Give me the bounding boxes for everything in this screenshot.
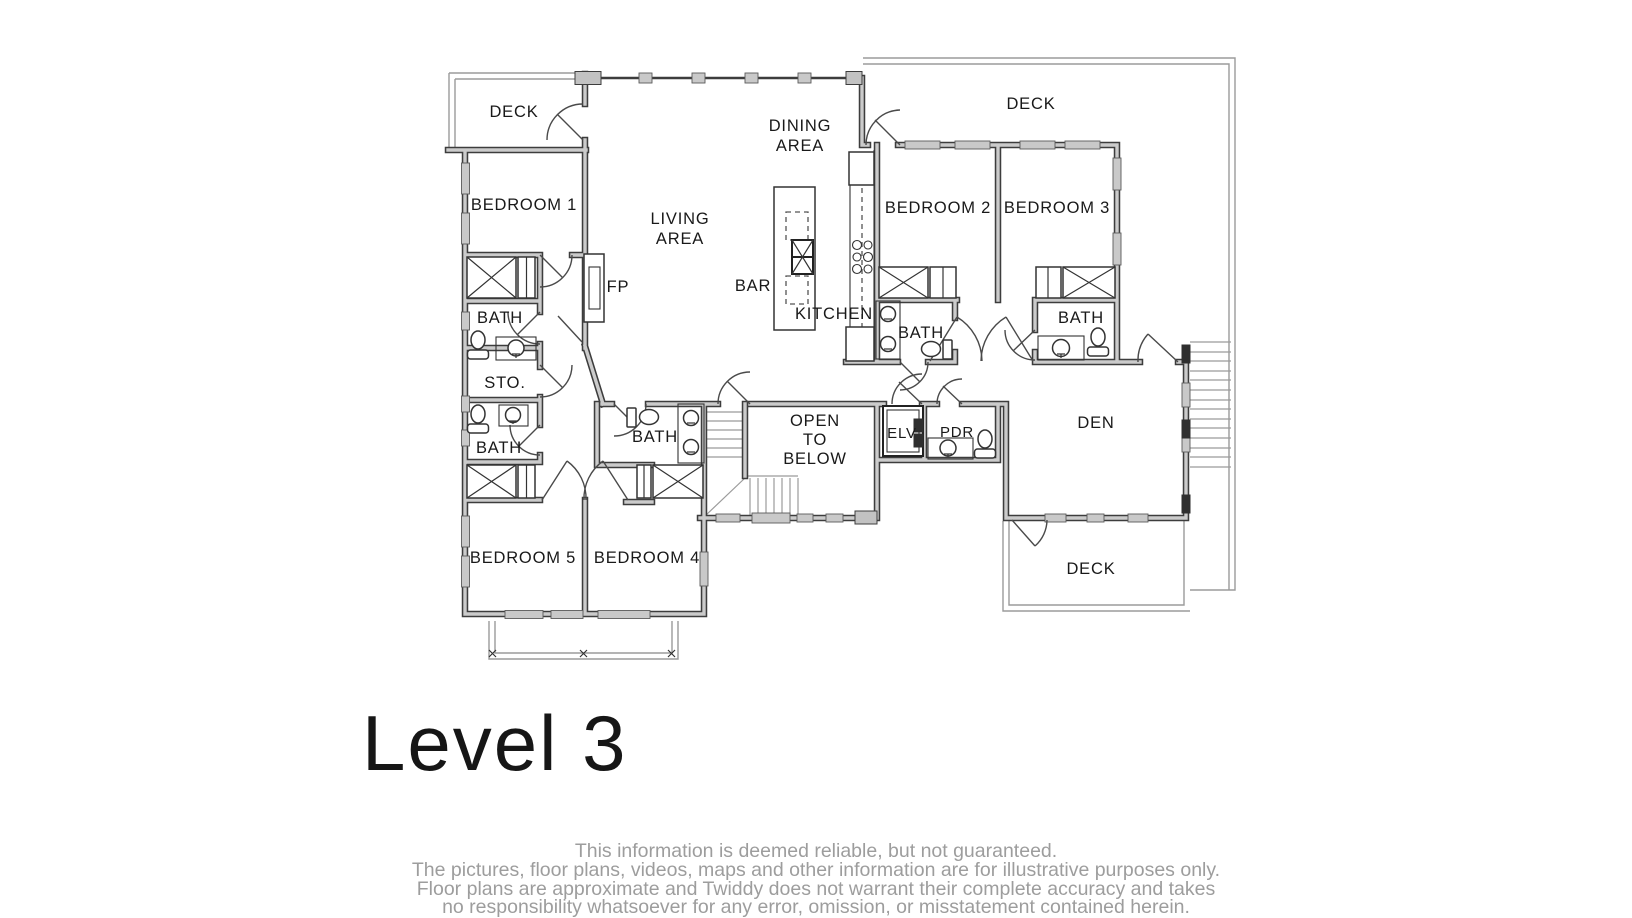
closet-icon	[467, 465, 535, 498]
room-label-living-area: LIVING	[651, 210, 710, 228]
door-arc	[1005, 330, 1035, 360]
floor-plan-svg: DECK BEDROOM 1 BATH STO. BATH BEDROOM 5 …	[0, 0, 1632, 916]
room-label-bath-bedroom-3: BATH	[1058, 309, 1104, 327]
room-label-bar: BAR	[735, 277, 771, 295]
room-label-dining-area-2: AREA	[776, 137, 824, 155]
room-label-bedroom-4: BEDROOM 4	[594, 549, 700, 567]
room-label-bath-1: BATH	[477, 309, 523, 327]
room-label-open-to-below: OPEN	[790, 412, 840, 430]
deck-post	[1182, 345, 1190, 363]
room-label-storage: STO.	[484, 374, 525, 392]
room-label-den: DEN	[1077, 414, 1114, 432]
fireplace-icon	[584, 254, 604, 322]
sink-icon	[928, 438, 973, 459]
closet-icon	[879, 267, 956, 298]
walls	[448, 74, 1186, 614]
island-sink-icon	[792, 240, 813, 274]
room-label-kitchen: KITCHEN	[795, 305, 873, 323]
room-label-deck-top-left: DECK	[489, 103, 538, 121]
door-arc	[900, 362, 928, 390]
sink-icon	[499, 405, 528, 426]
door-arc	[866, 110, 900, 145]
closet-icon	[1036, 267, 1115, 298]
toilet-icon	[468, 405, 489, 433]
toilet-icon	[627, 408, 659, 427]
room-label-powder-room: PDR	[940, 424, 974, 441]
door-arc	[1138, 334, 1178, 362]
vanity-icon	[678, 404, 704, 463]
closet-icon	[637, 465, 703, 498]
room-label-bedroom-1: BEDROOM 1	[471, 196, 577, 214]
door-leaf	[558, 316, 582, 342]
door-arc	[937, 379, 962, 404]
room-label-living-area-2: AREA	[656, 230, 704, 248]
room-label-deck-top-right: DECK	[1006, 95, 1055, 113]
sink-icon	[1038, 336, 1084, 360]
disclaimer-line: The pictures, floor plans, videos, maps …	[0, 861, 1632, 880]
deck-post	[1182, 420, 1190, 438]
room-label-fireplace: FP	[607, 278, 630, 296]
deck-post	[1182, 495, 1190, 513]
room-label-bedroom-5: BEDROOM 5	[470, 549, 576, 567]
toilet-icon	[975, 430, 996, 458]
toilet-icon	[1088, 328, 1109, 356]
door-arc	[540, 365, 572, 397]
disclaimer-line: This information is deemed reliable, but…	[0, 842, 1632, 861]
door-arc	[547, 104, 583, 140]
floor-title: Level 3	[362, 698, 628, 789]
room-label-dining-area: DINING	[769, 117, 832, 135]
room-label-open-to-below-2: TO	[803, 431, 827, 449]
room-label-bath-2: BATH	[476, 439, 522, 457]
toilet-icon	[922, 340, 953, 359]
door-arc	[542, 461, 586, 500]
door-arc	[1012, 520, 1047, 546]
disclaimer: This information is deemed reliable, but…	[0, 842, 1632, 917]
closet-icon	[467, 257, 535, 298]
room-label-bath-3: BATH	[632, 428, 678, 446]
room-label-bedroom-3: BEDROOM 3	[1004, 199, 1110, 217]
door-arc	[540, 255, 572, 287]
room-label-open-to-below-3: BELOW	[783, 450, 847, 468]
kitchen-counter	[846, 150, 874, 361]
floor-plan: DECK BEDROOM 1 BATH STO. BATH BEDROOM 5 …	[0, 0, 1632, 916]
room-label-bath-bedroom-2: BATH	[898, 324, 944, 342]
room-label-deck-bottom-right: DECK	[1066, 560, 1115, 578]
windows	[462, 72, 1191, 619]
disclaimer-line: no responsibility whatsoever for any err…	[0, 898, 1632, 917]
door-arc	[718, 372, 750, 404]
room-label-bedroom-2: BEDROOM 2	[885, 199, 991, 217]
room-label-elevator: ELV	[887, 425, 917, 442]
